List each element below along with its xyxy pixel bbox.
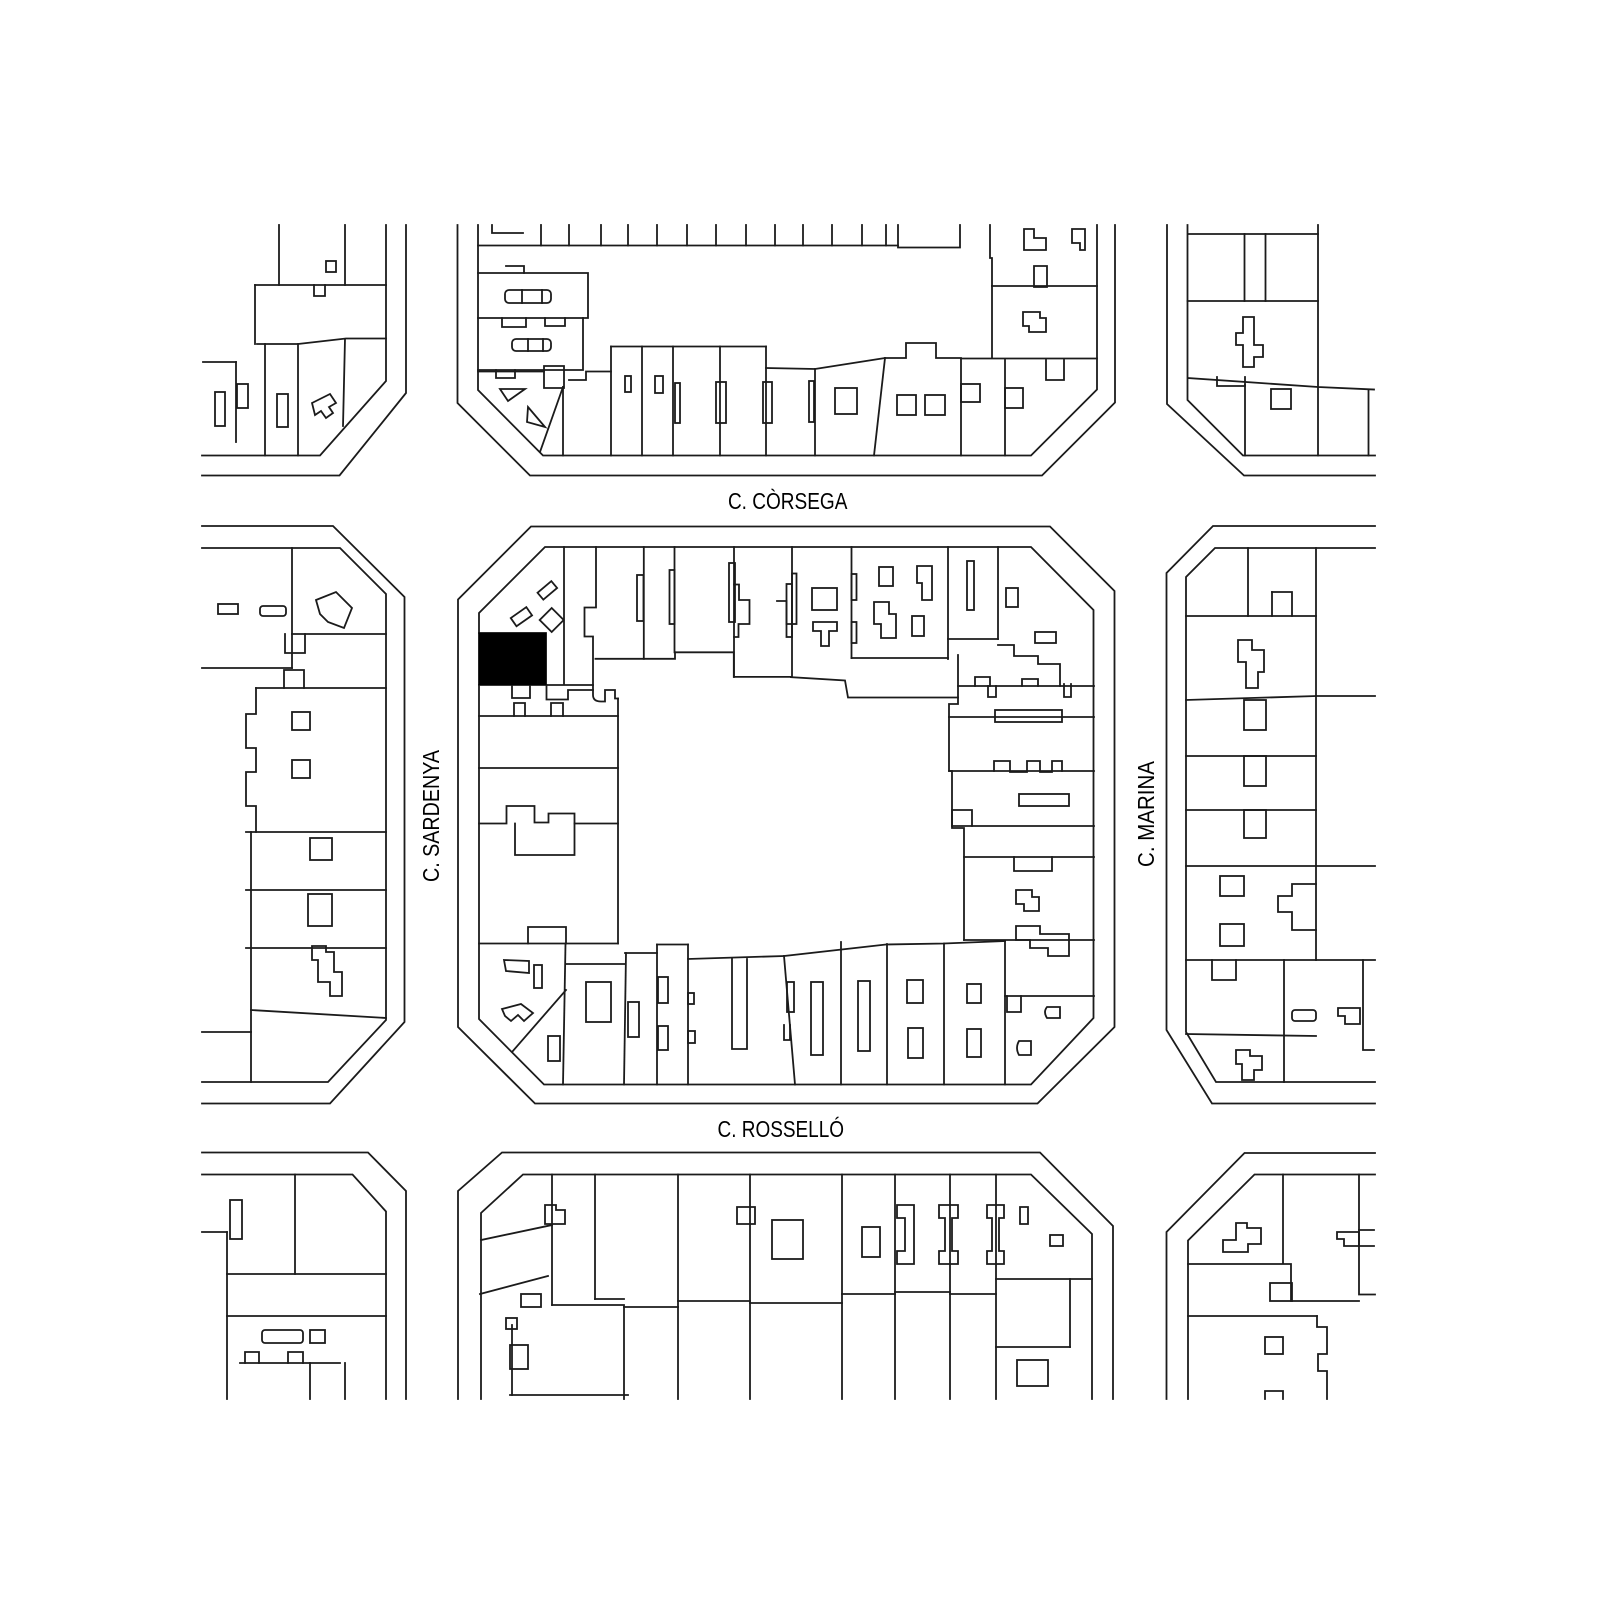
svg-text:C. CÒRSEGA: C. CÒRSEGA <box>728 488 848 514</box>
svg-text:C. MARINA: C. MARINA <box>1133 761 1159 867</box>
svg-text:C. ROSSELLÓ: C. ROSSELLÓ <box>718 1116 845 1142</box>
svg-text:C. SARDENYA: C. SARDENYA <box>418 750 444 882</box>
